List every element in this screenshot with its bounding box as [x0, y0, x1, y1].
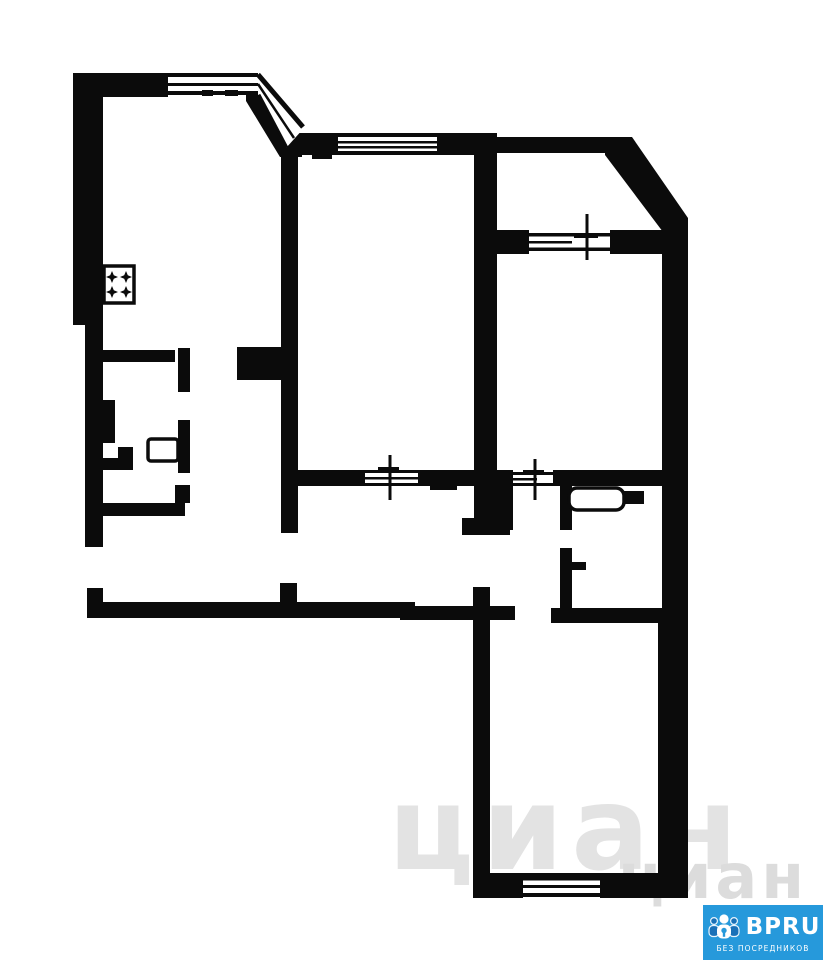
- vent-cross-icon: [574, 214, 598, 260]
- window-middle-wall-left: [365, 455, 418, 500]
- window-middle-wall-right: [513, 459, 553, 500]
- floor-plan-page: циан циан: [0, 0, 823, 960]
- window-bottom-room: [523, 877, 600, 898]
- bpru-logo-badge: BPRU БЕЗ ПОСРЕДНИКОВ: [703, 905, 823, 960]
- logo-tagline-text: БЕЗ ПОСРЕДНИКОВ: [716, 944, 809, 953]
- people-group-keyhole-icon: [706, 912, 742, 942]
- window-living-room-top: [338, 133, 437, 155]
- logo-brand-text: BPRU: [746, 916, 821, 939]
- apartment-floor-plan: [0, 0, 823, 960]
- toilet-icon: [148, 439, 178, 461]
- interior-walls: [97, 133, 662, 610]
- bay-window: [168, 73, 304, 157]
- window-top-right-room: [529, 214, 610, 260]
- stove-icon: [97, 266, 134, 303]
- cabinet-fixture-icon: [569, 488, 624, 510]
